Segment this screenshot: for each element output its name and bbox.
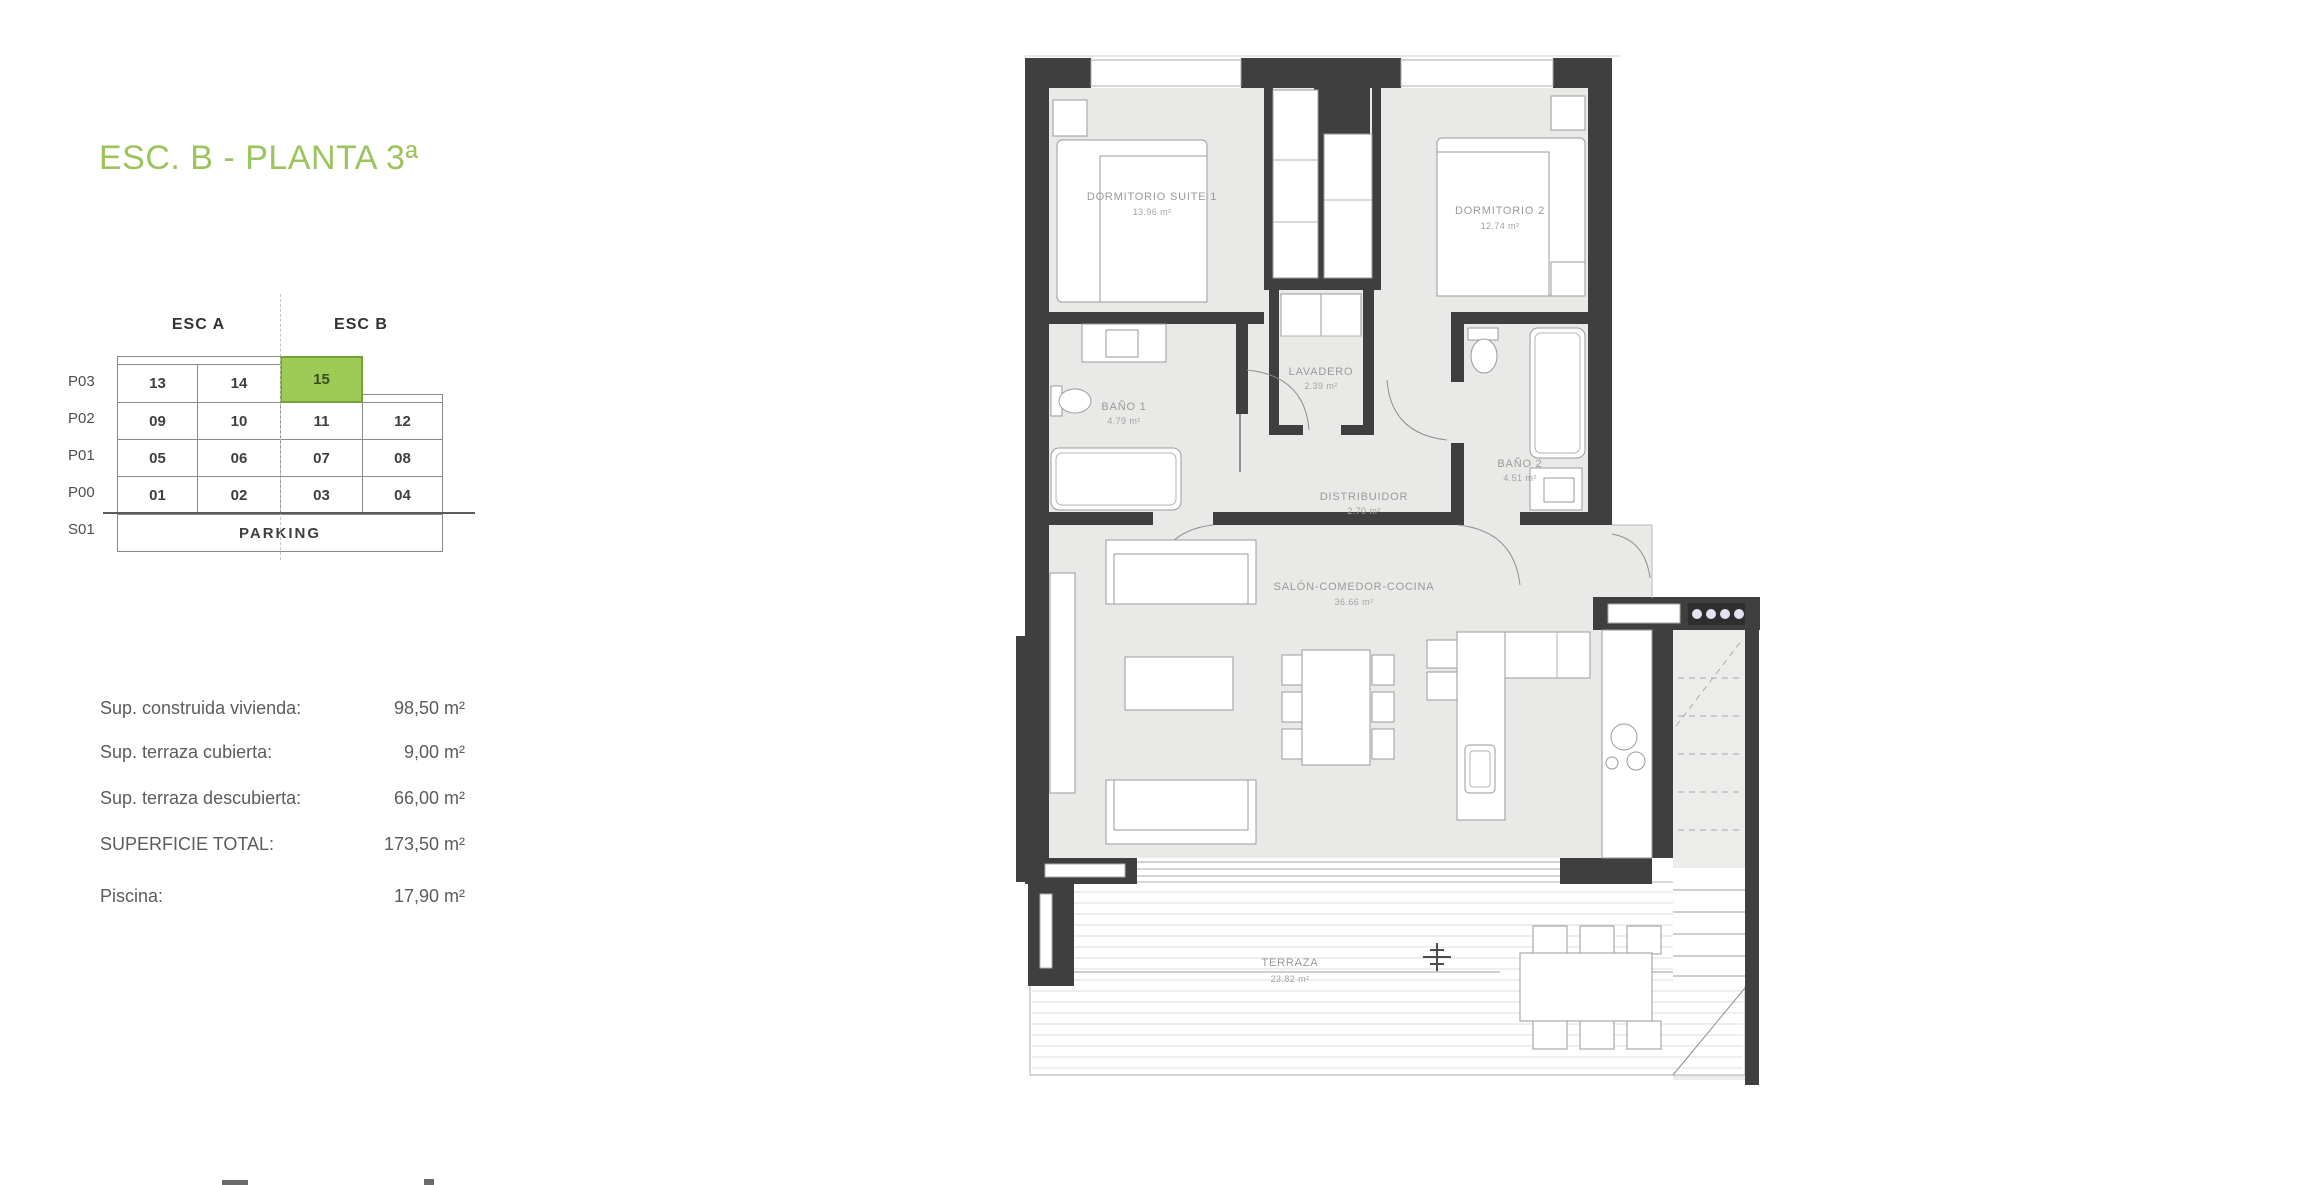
room-area-lavadero: 2.39 m² [1304, 381, 1337, 391]
floorplan-drawing: DORMITORIO SUITE 1 13.96 m² DORMITORIO 2… [0, 0, 2304, 1185]
unit-cell-15-selected[interactable]: 15 [280, 356, 363, 403]
room-area-distribuidor: 2.70 m² [1347, 506, 1380, 516]
floorplan-sheet: ESC. B - PLANTA 3ª ESC A ESC B P03 P02 P… [0, 0, 2304, 1185]
room-label-salon: SALÓN-COMEDOR-COCINA [1274, 580, 1435, 593]
ground-line [103, 512, 475, 514]
room-area-bano1: 4.79 m² [1107, 416, 1140, 426]
outdoor-table-icon [1520, 953, 1652, 1021]
room-label-lavadero: LAVADERO [1289, 366, 1354, 378]
room-label-dormitorio-suite1: DORMITORIO SUITE 1 [1087, 191, 1217, 203]
room-label-terraza: TERRAZA [1262, 957, 1319, 969]
coffee-table-icon [1125, 657, 1233, 710]
room-label-bano2: BAÑO 2 [1497, 457, 1542, 470]
room-label-bano1: BAÑO 1 [1101, 400, 1146, 413]
room-area-salon: 36.66 m² [1335, 597, 1374, 607]
dining-table-icon [1302, 650, 1370, 765]
room-label-dormitorio2: DORMITORIO 2 [1455, 205, 1545, 217]
toilet-icon [1059, 389, 1091, 413]
laundry-appliances [1281, 294, 1361, 336]
room-area-dormitorio2: 12.74 m² [1481, 221, 1520, 231]
room-area-dormitorio-suite1: 13.96 m² [1133, 207, 1172, 217]
stair-entry-strip [1608, 603, 1745, 625]
bathtub-icon [1051, 448, 1181, 510]
shower-icon [1530, 328, 1585, 458]
washbasin-icon [1471, 339, 1497, 373]
table-divider-dashed [280, 294, 281, 560]
room-area-terraza: 23.82 m² [1271, 974, 1310, 984]
room-area-bano2: 4.51 m² [1503, 473, 1536, 483]
room-label-distribuidor: DISTRIBUIDOR [1320, 491, 1408, 503]
cooktop-icon [1611, 724, 1637, 750]
